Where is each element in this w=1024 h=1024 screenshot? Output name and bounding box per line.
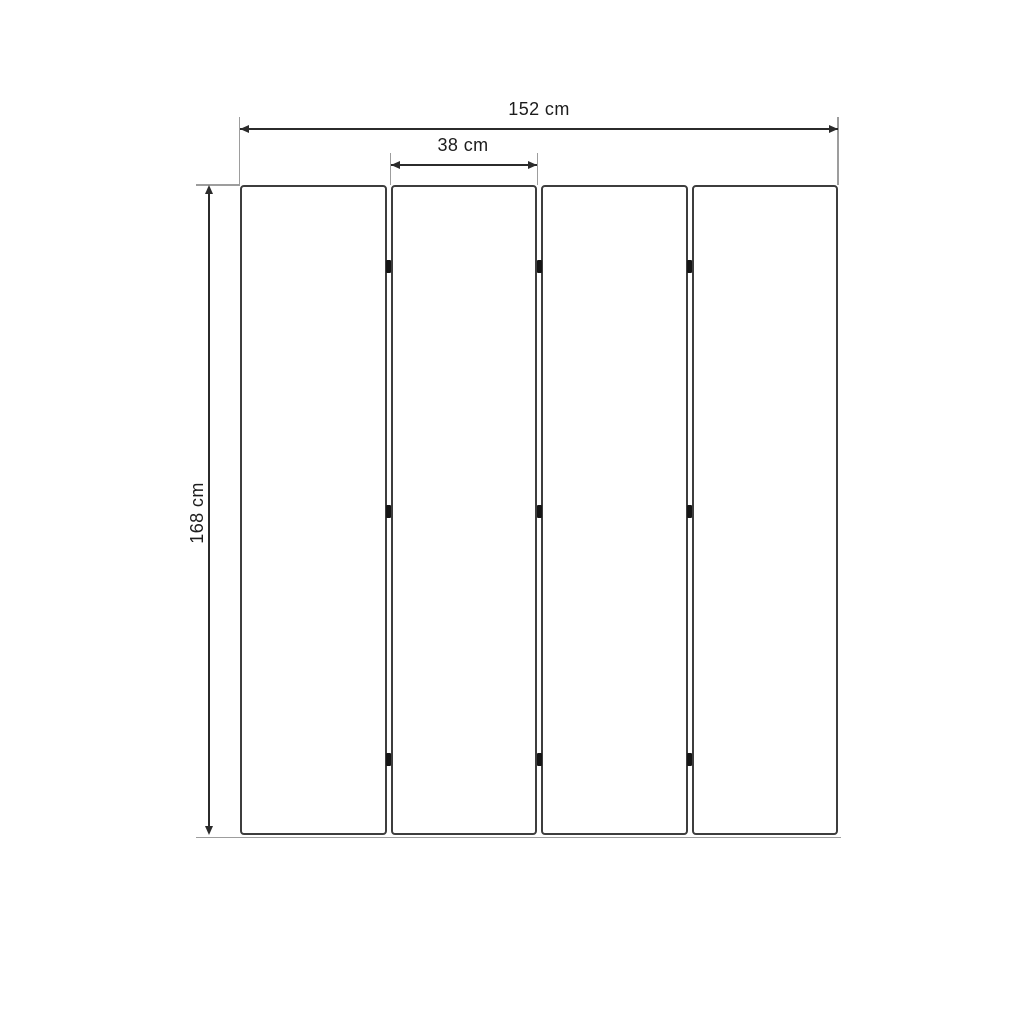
panel-width-label: 38 cm [437,136,488,154]
extension-line-panel-right [537,153,539,185]
height-dimension-line [208,188,210,830]
panel-1 [240,185,387,835]
arrow-right-icon [829,125,838,133]
arrow-right-icon [528,161,537,169]
hinge-icon [537,505,542,518]
extension-line-panel-left [390,153,392,185]
arrow-left-icon [240,125,249,133]
panel-3 [541,185,688,835]
extension-line-height-bottom [196,837,841,839]
hinge-icon [687,260,692,273]
overall-width-label: 152 cm [508,100,569,118]
hinge-icon [687,505,692,518]
extension-line-height-top [196,184,240,186]
hinge-icon [386,753,391,766]
arrow-up-icon [205,185,213,194]
hinge-icon [687,753,692,766]
panel-2 [391,185,538,835]
hinge-icon [537,260,542,273]
hinge-icon [386,505,391,518]
height-label: 168 cm [188,482,206,543]
arrow-down-icon [205,826,213,835]
panel-width-dimension-line [391,164,538,166]
arrow-left-icon [391,161,400,169]
hinge-icon [386,260,391,273]
panel-4 [692,185,839,835]
width-dimension-line [240,128,838,130]
folding-screen-diagram: 152 cm 38 cm 168 cm [0,0,1024,1024]
hinge-icon [537,753,542,766]
